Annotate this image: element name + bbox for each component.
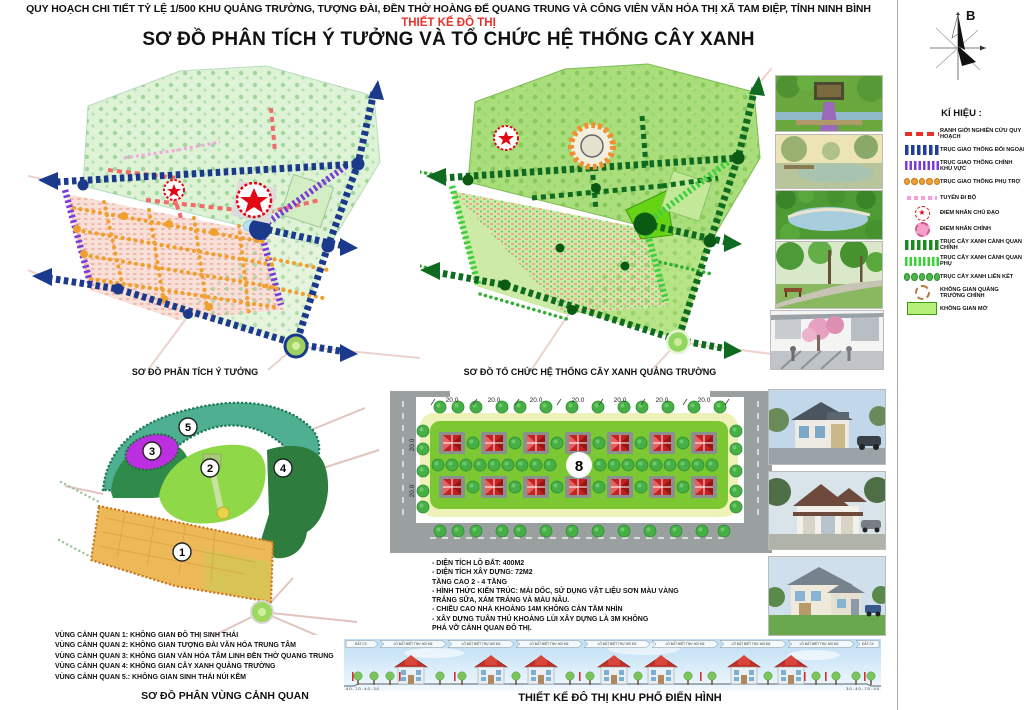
legend-row-external-traffic: TRỤC GIAO THÔNG ĐỐI NGOẠI bbox=[898, 142, 1024, 158]
legend-label: ĐIỂM NHẤN CHỦ ĐẠO bbox=[940, 210, 999, 216]
map-concept-analysis bbox=[28, 58, 420, 370]
dim-left-2: 20.0 bbox=[409, 484, 416, 497]
legend-label: TRỤC GIAO THÔNG PHỤ TRỢ bbox=[940, 179, 1020, 185]
green-bars-symbol bbox=[904, 255, 940, 268]
plot-label: LÔ ĐẤT BIỆT THỰ 400 M2 bbox=[394, 641, 433, 646]
plot-label: LÔ ĐẤT BIỆT THỰ 400 M2 bbox=[666, 641, 705, 646]
legend-label: TRỤC GIAO THÔNG CHÍNH KHU VỰC bbox=[940, 160, 1024, 172]
red-dashed-line-symbol bbox=[904, 127, 940, 140]
legend-panel: B KÍ HIỆU : RANH GIỚI NGHIÊN CỨU QUY HOẠ… bbox=[897, 0, 1024, 710]
map-green-system bbox=[420, 58, 772, 372]
zone-badge-2: 2 bbox=[207, 463, 213, 475]
plot-label: LÔ ĐẤT BIỆT THỰ 400 M2 bbox=[598, 641, 637, 646]
legend-row-main-green-axis: TRỤC CÂY XANH CẢNH QUAN CHÍNH bbox=[898, 237, 1024, 253]
legend-title: KÍ HIỆU : bbox=[898, 108, 1024, 119]
green-rect-symbol bbox=[904, 302, 940, 315]
photo-garden-stage bbox=[775, 75, 883, 132]
legend-label: TRỤC GIAO THÔNG ĐỐI NGOẠI bbox=[940, 147, 1024, 153]
caption-green-map: SƠ ĐỒ TỔ CHỨC HỆ THỐNG CÂY XANH QUẢNG TR… bbox=[455, 367, 725, 377]
legend-label: TRỤC CÂY XANH CẢNH QUAN PHỤ bbox=[940, 255, 1024, 267]
caption-concept-map: SƠ ĐỒ PHÂN TÍCH Ý TƯỞNG bbox=[85, 367, 305, 377]
plan-sheet: QUY HOẠCH CHI TIẾT TỶ LỆ 1/500 KHU QUẢNG… bbox=[0, 0, 1024, 710]
red-star-symbol: ★ bbox=[904, 207, 940, 220]
zone-note-5: VÙNG CẢNH QUAN 5.: KHÔNG GIAN SINH THÁI … bbox=[55, 673, 365, 683]
legend-row-open-space: KHÔNG GIAN MỞ bbox=[898, 301, 1024, 317]
zones-map-svg: 1 2 3 4 5 bbox=[55, 390, 387, 635]
photo-park-path bbox=[775, 241, 883, 309]
zone-note-2: VÙNG CẢNH QUAN 2: KHÔNG GIAN TƯỢNG ĐÀI V… bbox=[55, 641, 365, 651]
photo-lake-aerial bbox=[775, 190, 883, 240]
spec-line: - XÂY DỰNG TUÂN THỦ KHOẢNG LÙI XÂY DỰNG … bbox=[432, 615, 732, 624]
street-elevation-svg: ĐẤT CX LÔ ĐẤT BIỆT THỰ 400 M2 LÔ ĐẤT BIỆ… bbox=[344, 639, 881, 691]
orange-dots-symbol bbox=[904, 175, 940, 188]
legend-row-main-square-space: KHÔNG GIAN QUẢNG TRƯỜNG CHÍNH bbox=[898, 285, 1024, 301]
map-landscape-zones: 1 2 3 4 5 bbox=[55, 390, 387, 635]
street-elevation: ĐẤT CX LÔ ĐẤT BIỆT THỰ 400 M2 LÔ ĐẤT BIỆ… bbox=[344, 639, 881, 691]
plot-label: LÔ ĐẤT BIỆT THỰ 400 M2 bbox=[732, 641, 771, 646]
compass-north-label: B bbox=[966, 8, 975, 23]
spec-line: - DIỆN TÍCH XÂY DỰNG: 72M2 bbox=[432, 568, 732, 577]
sheet-subtitle-red: THIẾT KẾ ĐÔ THỊ bbox=[0, 17, 897, 29]
zone-badge-1: 1 bbox=[179, 547, 185, 559]
dim-top-5: 20.0 bbox=[614, 397, 627, 404]
dim-top-2: 20.0 bbox=[488, 397, 501, 404]
legend-row-walking-route: TUYẾN ĐI BỘ bbox=[898, 190, 1024, 206]
concept-map-svg bbox=[28, 58, 420, 370]
green-map-svg bbox=[420, 58, 772, 372]
sheet-title-line1: QUY HOẠCH CHI TIẾT TỶ LỆ 1/500 KHU QUẢNG… bbox=[0, 3, 897, 15]
dim-top-7: 20.0 bbox=[698, 397, 711, 404]
spec-line: TẦNG CAO 2 - 4 TẦNG bbox=[432, 578, 732, 587]
villa-specs: - DIỆN TÍCH LÔ ĐẤT: 400M2 - DIỆN TÍCH XÂ… bbox=[432, 559, 732, 633]
legend-row-secondary-landmark: ĐIỂM NHẤN CHÍNH bbox=[898, 221, 1024, 237]
compass-icon: B bbox=[922, 4, 994, 84]
secondary-landmark-star bbox=[164, 180, 184, 200]
plot-label-end-right: ĐẤT CX bbox=[862, 642, 875, 646]
page-title: SƠ ĐỒ PHÂN TÍCH Ý TƯỞNG VÀ TỔ CHỨC HỆ TH… bbox=[0, 29, 897, 51]
legend-row-boundary: RANH GIỚI NGHIÊN CỨU QUY HOẠCH bbox=[898, 126, 1024, 142]
spec-line: TRẮNG SỮA, XÁM TRẮNG VÀ MÀU NÂU. bbox=[432, 596, 732, 605]
spec-line: - CHIỀU CAO NHÀ KHOẢNG 14M KHÔNG CẢN TẦM… bbox=[432, 605, 732, 614]
purple-bars-symbol bbox=[904, 159, 940, 172]
legend-label: ĐIỂM NHẤN CHÍNH bbox=[940, 226, 991, 232]
zone-badge-3: 3 bbox=[149, 446, 155, 458]
plot-label: LÔ ĐẤT BIỆT THỰ 400 M2 bbox=[800, 641, 839, 646]
plot-label-end-left: ĐẤT CX bbox=[355, 642, 368, 646]
brown-ring-symbol bbox=[904, 286, 940, 299]
photo-villa-garden bbox=[768, 556, 886, 636]
green-dots-symbol bbox=[904, 270, 940, 283]
legend-row-main-area-traffic: TRỤC GIAO THÔNG CHÍNH KHU VỰC bbox=[898, 158, 1024, 174]
dim-top-4: 20.0 bbox=[572, 397, 585, 404]
legend-label: RANH GIỚI NGHIÊN CỨU QUY HOẠCH bbox=[940, 128, 1024, 140]
block-number-badge: 8 bbox=[575, 458, 583, 475]
dim-left-1: 20.0 bbox=[409, 438, 416, 451]
legend-row-main-landmark: ★ ĐIỂM NHẤN CHỦ ĐẠO bbox=[898, 205, 1024, 221]
plot-label: LÔ ĐẤT BIỆT THỰ 400 M2 bbox=[462, 641, 501, 646]
dim-top-6: 20.0 bbox=[656, 397, 669, 404]
dark-green-bars-symbol bbox=[904, 239, 940, 252]
elevation-dims-left: 4.0 - 7.0 - 4.0 - 3.0 bbox=[346, 686, 380, 691]
spec-line: PHÁ VỠ CẢNH QUAN ĐÔ THỊ. bbox=[432, 624, 732, 633]
photo-villa-modern bbox=[768, 389, 886, 465]
legend-row-linking-green: TRỤC CÂY XANH LIÊN KẾT bbox=[898, 269, 1024, 285]
block-plan-svg: 8 20.0 20.0 20.0 20.0 20.0 20.0 20.0 20.… bbox=[390, 391, 772, 553]
zone-note-3: VÙNG CẢNH QUAN 3: KHÔNG GIAN VĂN HÓA TÂM… bbox=[55, 652, 365, 662]
plot-label: LÔ ĐẤT BIỆT THỰ 400 M2 bbox=[530, 641, 569, 646]
zone-note-1: VÙNG CẢNH QUAN 1: KHÔNG GIAN ĐÔ THỊ SINH… bbox=[55, 631, 365, 641]
legend-row-auxiliary-traffic: TRỤC GIAO THÔNG PHỤ TRỢ bbox=[898, 174, 1024, 190]
pink-circle-symbol bbox=[904, 223, 940, 236]
dim-top-1: 20.0 bbox=[446, 397, 459, 404]
zone-badge-4: 4 bbox=[280, 463, 287, 475]
legend-row-secondary-green-axis: TRỤC CÂY XANH CẢNH QUAN PHỤ bbox=[898, 253, 1024, 269]
legend-label: TRỤC CÂY XANH LIÊN KẾT bbox=[940, 274, 1013, 280]
legend-label: KHÔNG GIAN QUẢNG TRƯỜNG CHÍNH bbox=[940, 287, 1024, 299]
photo-street-sketch bbox=[770, 310, 884, 370]
zone-note-4: VÙNG CẢNH QUAN 4: KHÔNG GIAN CÂY XANH QU… bbox=[55, 662, 365, 672]
legend-label: TUYẾN ĐI BỘ bbox=[940, 195, 976, 201]
photo-lake-view bbox=[775, 134, 883, 189]
green-map-star bbox=[494, 126, 518, 150]
main-square-ring bbox=[571, 125, 613, 167]
legend-label: KHÔNG GIAN MỞ bbox=[940, 306, 987, 312]
legend-items: RANH GIỚI NGHIÊN CỨU QUY HOẠCH TRỤC GIAO… bbox=[898, 126, 1024, 317]
pink-dashes-symbol bbox=[904, 191, 940, 204]
dim-top-3: 20.0 bbox=[530, 397, 543, 404]
spec-line: - DIỆN TÍCH LÔ ĐẤT: 400M2 bbox=[432, 559, 732, 568]
legend-label: TRỤC CÂY XANH CẢNH QUAN CHÍNH bbox=[940, 239, 1024, 251]
villa-block-plan: 8 20.0 20.0 20.0 20.0 20.0 20.0 20.0 20.… bbox=[390, 391, 772, 553]
spec-line: - HÌNH THỨC KIẾN TRÚC: MÁI DỐC, SỬ DỤNG … bbox=[432, 587, 732, 596]
zone-badge-5: 5 bbox=[185, 422, 191, 434]
caption-zones-map: SƠ ĐỒ PHÂN VÙNG CẢNH QUAN bbox=[100, 690, 350, 702]
caption-street-elevation: THIẾT KẾ ĐÔ THỊ KHU PHỐ ĐIỂN HÌNH bbox=[470, 692, 770, 704]
elevation-dims-right: 3.0 - 4.0 - 7.0 - 4.0 bbox=[846, 686, 880, 691]
blue-bars-symbol bbox=[904, 143, 940, 156]
zone-notes: VÙNG CẢNH QUAN 1: KHÔNG GIAN ĐÔ THỊ SINH… bbox=[55, 631, 365, 683]
photo-villa-classic bbox=[768, 471, 886, 550]
